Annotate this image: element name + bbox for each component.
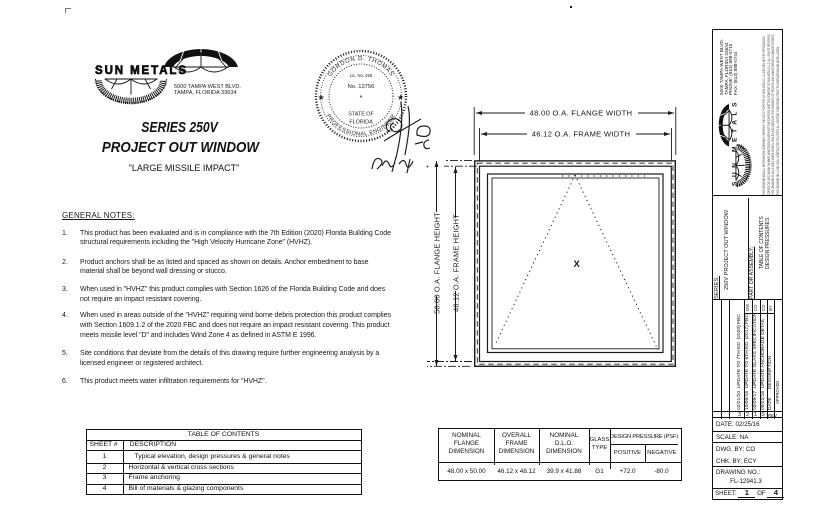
svg-text:FLORIDA: FLORIDA (349, 120, 373, 126)
svg-text:48.12 O.A. FRAME HEIGHT: 48.12 O.A. FRAME HEIGHT (452, 214, 461, 312)
svg-text:50.00 O.A. FLANGE HEIGHT: 50.00 O.A. FLANGE HEIGHT (433, 212, 442, 314)
svg-text:X: X (574, 259, 581, 270)
svg-text:STATE OF: STATE OF (348, 112, 374, 118)
svg-text:★: ★ (397, 93, 404, 102)
svg-text:★: ★ (318, 93, 325, 102)
svg-text:46.12 O.A. FRAME WIDTH: 46.12 O.A. FRAME WIDTH (532, 130, 631, 139)
svg-text:Lic. No. 456: Lic. No. 456 (350, 73, 373, 78)
svg-text:48.00 O.A. FLANGE WIDTH: 48.00 O.A. FLANGE WIDTH (530, 109, 633, 118)
svg-text:SUN METALS: SUN METALS (731, 100, 738, 186)
svg-text:*: * (360, 93, 363, 102)
svg-text:No. 13756: No. 13756 (348, 84, 375, 90)
